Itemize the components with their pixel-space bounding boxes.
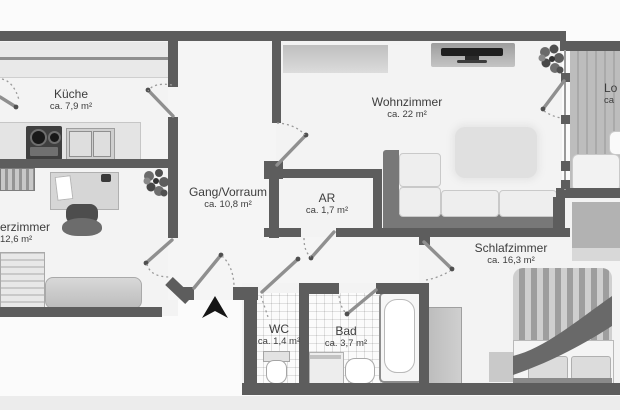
floorplan-canvas: Küche ca. 7,9 m² erzimmer 12,6 m² Gang/V… xyxy=(0,0,620,410)
sofa-cushion-2 xyxy=(399,187,441,217)
schlaf-sideboard-front xyxy=(572,248,620,261)
bad-sink xyxy=(345,358,375,384)
room-name-wc: WC xyxy=(258,323,300,336)
room-label-loggia: Lo ca xyxy=(604,82,617,106)
wall-gang-left-upper xyxy=(168,41,178,87)
wall-kueche-divider xyxy=(0,159,178,168)
stove-oven-front xyxy=(30,147,58,156)
wall-wc-left xyxy=(244,293,257,393)
wall-wc-bad-divider xyxy=(299,290,309,385)
stove-burner-right xyxy=(48,131,61,144)
bottom-margin-strip xyxy=(0,396,620,410)
sink-basin-right xyxy=(93,131,111,157)
wall-kinder-bottom xyxy=(0,307,162,317)
room-label-gang: Gang/Vorraum ca. 10,8 m² xyxy=(189,186,267,210)
kinder-bed xyxy=(0,252,45,309)
wall-bottom xyxy=(242,383,620,395)
bed-curtain xyxy=(513,268,612,348)
wall-ar-bottom xyxy=(264,228,301,237)
wall-top-loggia xyxy=(560,41,620,51)
bed-pillow-right xyxy=(571,356,611,380)
desk-paper xyxy=(55,175,74,201)
wall-top xyxy=(0,31,566,41)
kitchen-upper-cabinets xyxy=(0,42,168,78)
wohnzimmer-shelf xyxy=(283,45,388,73)
kinder-sofa xyxy=(45,277,142,309)
tv-sideboard xyxy=(431,43,515,67)
bed-pillow-left xyxy=(528,356,568,380)
room-label-wohnzimmer: Wohnzimmer ca. 22 m² xyxy=(372,96,442,120)
room-name-wohnzimmer: Wohnzimmer xyxy=(372,96,442,109)
room-name-bad: Bad xyxy=(325,325,367,338)
washing-machine-panel xyxy=(310,355,341,359)
glass-mullion-2 xyxy=(561,115,570,124)
wall-ar-top xyxy=(275,169,382,178)
schlaf-wardrobe xyxy=(429,307,462,384)
loggia-bench xyxy=(572,154,620,192)
room-area-kinderzimmer: 12,6 m² xyxy=(0,234,50,245)
schlaf-bench xyxy=(489,352,515,382)
glass-mullion-1 xyxy=(561,73,570,82)
wall-right-connector xyxy=(553,197,565,230)
toilet-bowl xyxy=(266,360,287,384)
sofa-cushion-3 xyxy=(441,190,499,217)
room-label-wc: WC ca. 1,4 m² xyxy=(258,323,300,347)
bathtub-inner xyxy=(384,299,415,373)
room-area-wc: ca. 1,4 m² xyxy=(258,336,300,347)
desk-chair-base xyxy=(62,218,102,236)
room-area-schlafzimmer: ca. 16,3 m² xyxy=(475,255,548,266)
schlaf-sideboard xyxy=(572,202,620,248)
room-name-kinderzimmer: erzimmer xyxy=(0,221,50,234)
sofa-cushion-1 xyxy=(399,153,441,187)
stove-burner-left xyxy=(30,129,47,146)
glass-mullion-3 xyxy=(561,161,570,171)
room-area-loggia: ca xyxy=(604,95,617,106)
room-area-wohnzimmer: ca. 22 m² xyxy=(372,109,442,120)
room-label-kueche: Küche ca. 7,9 m² xyxy=(50,88,92,112)
kitchen-counter-edge xyxy=(0,57,168,60)
room-area-bad: ca. 3,7 m² xyxy=(325,338,367,349)
loggia-chair xyxy=(609,131,620,155)
room-name-kueche: Küche xyxy=(50,88,92,101)
sofa-cushion-4 xyxy=(499,190,557,217)
wall-schlaf-door-hinge-stub xyxy=(419,228,430,245)
wall-bad-right xyxy=(419,283,429,385)
wall-ar-right xyxy=(373,169,382,237)
room-area-ar: ca. 1,7 m² xyxy=(306,205,348,216)
room-name-loggia: Lo xyxy=(604,82,617,95)
glass-mullion-4 xyxy=(561,180,570,189)
desk-lamp xyxy=(101,174,111,182)
sink-basin-left xyxy=(69,131,92,157)
room-label-kinderzimmer: erzimmer 12,6 m² xyxy=(0,221,50,245)
wall-gang-left-mid xyxy=(168,117,178,238)
room-label-bad: Bad ca. 3,7 m² xyxy=(325,325,367,349)
room-name-ar: AR xyxy=(306,192,348,205)
wall-gang-right xyxy=(272,41,281,123)
wall-wohn-bottom xyxy=(336,228,570,237)
room-label-schlafzimmer: Schlafzimmer ca. 16,3 m² xyxy=(475,242,548,266)
coffee-table xyxy=(455,127,537,178)
room-label-ar: AR ca. 1,7 m² xyxy=(306,192,348,216)
kinder-wardrobe xyxy=(0,168,35,191)
room-name-gang: Gang/Vorraum xyxy=(189,186,267,199)
room-name-schlafzimmer: Schlafzimmer xyxy=(475,242,548,255)
room-area-gang: ca. 10,8 m² xyxy=(189,199,267,210)
wall-entry-left-stub xyxy=(182,287,194,300)
room-area-kueche: ca. 7,9 m² xyxy=(50,101,92,112)
